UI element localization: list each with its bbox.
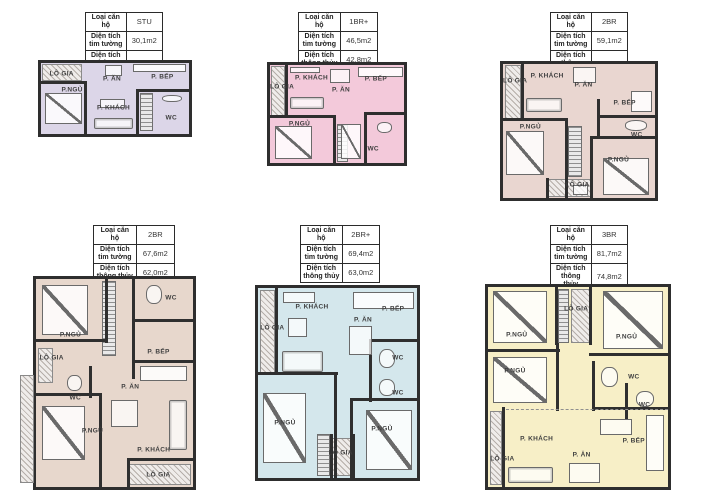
room-label: P. BẾP — [623, 438, 645, 445]
room-label: P.NGỦ — [608, 157, 629, 164]
wall-partition — [592, 361, 595, 411]
room-label: WC — [165, 294, 176, 301]
room-label: WC — [70, 394, 81, 401]
room-label: P. ĂN — [332, 86, 350, 93]
room-label: LÔ GIA — [565, 181, 589, 188]
sofa-outline — [508, 467, 553, 483]
room-label: P. BẾP — [613, 99, 635, 106]
wall-partition — [589, 287, 592, 345]
room-label: WC — [166, 114, 177, 121]
fixture-outline — [601, 367, 617, 387]
room-label: LÔ GIA — [503, 78, 527, 85]
spec-type-value: 3BR — [591, 226, 627, 245]
room-label: WC — [639, 402, 650, 409]
floorplan-sheet: Loại căn hộ STU Diện tích tim tường 30,1… — [0, 0, 708, 500]
table-outline — [600, 419, 632, 435]
room-label: WC — [392, 355, 403, 362]
counter-outline — [646, 415, 664, 471]
room-label: P.NGỦ — [520, 123, 541, 130]
bed-outline — [493, 357, 547, 403]
room-label: P. ĂN — [354, 317, 372, 324]
wall-partition — [556, 343, 559, 411]
room-label: P. ĂN — [103, 75, 121, 82]
wall-partition — [555, 287, 558, 345]
room-label: P. ĂN — [573, 452, 591, 459]
room-label: P. KHÁCH — [97, 105, 130, 112]
wall-partition — [488, 349, 560, 352]
room-label: WC — [628, 374, 639, 381]
room-label: P.NGỦ — [616, 334, 637, 341]
room-label: LÔ GIA — [146, 471, 170, 478]
room-label: WC — [631, 132, 642, 139]
room-label: P. BẾP — [151, 74, 173, 81]
room-label: LÔ GIA — [490, 456, 514, 463]
spec-type-label: Loại căn hộ — [551, 226, 592, 245]
spec-gross-label: Diện tích tim tường — [551, 245, 592, 264]
wall-partition — [506, 409, 668, 410]
floor-plan: P.NGỦLÔ GIAP.NGỦP.NGỦWCWCP. KHÁCHP. ĂNP.… — [485, 284, 671, 490]
room-label: LÔ GIA — [270, 83, 294, 90]
balcony-hatch — [571, 289, 591, 343]
wall-partition — [625, 383, 628, 419]
room-label: LÔ GIA — [260, 324, 284, 331]
room-label: P.NGỦ — [289, 120, 310, 127]
room-label: P.NGỦ — [504, 368, 525, 375]
room-label: WC — [367, 146, 378, 153]
room-label: P. BẾP — [147, 348, 169, 355]
room-label: P. KHÁCH — [296, 304, 329, 311]
room-label: P. KHÁCH — [520, 436, 553, 443]
room-label: LÔ GIA — [329, 450, 353, 457]
room-label: P. KHÁCH — [295, 74, 328, 81]
room-label: LÔ GIA — [564, 306, 588, 313]
room-label: P.NGỦ — [506, 332, 527, 339]
room-label: WC — [392, 389, 403, 396]
table-outline — [569, 463, 600, 483]
room-label: P.NGỦ — [371, 425, 392, 432]
room-label: P. BẾP — [365, 75, 387, 82]
wall-partition — [502, 407, 505, 487]
spec-gross-value: 81,7m2 — [591, 245, 627, 264]
balcony-hatch — [490, 411, 503, 485]
room-label: P. ĂN — [121, 384, 139, 391]
room-label: P.NGỦ — [60, 332, 81, 339]
spec-table: Loại căn hộ 3BR Diện tích tim tường 81,7… — [550, 225, 628, 291]
room-label: LÔ GIA — [40, 355, 64, 362]
room-label: P.NGỦ — [61, 86, 82, 93]
room-label: P.NGỦ — [82, 427, 103, 434]
room-label: P. ĂN — [575, 82, 593, 89]
room-label: P. KHÁCH — [137, 446, 170, 453]
room-label: P. KHÁCH — [531, 73, 564, 80]
wall-partition — [589, 353, 668, 356]
room-label: LÔ GIA — [50, 70, 74, 77]
room-label: P. BẾP — [382, 305, 404, 312]
stairs-hatch — [558, 289, 569, 343]
room-label: P.NGỦ — [274, 419, 295, 426]
